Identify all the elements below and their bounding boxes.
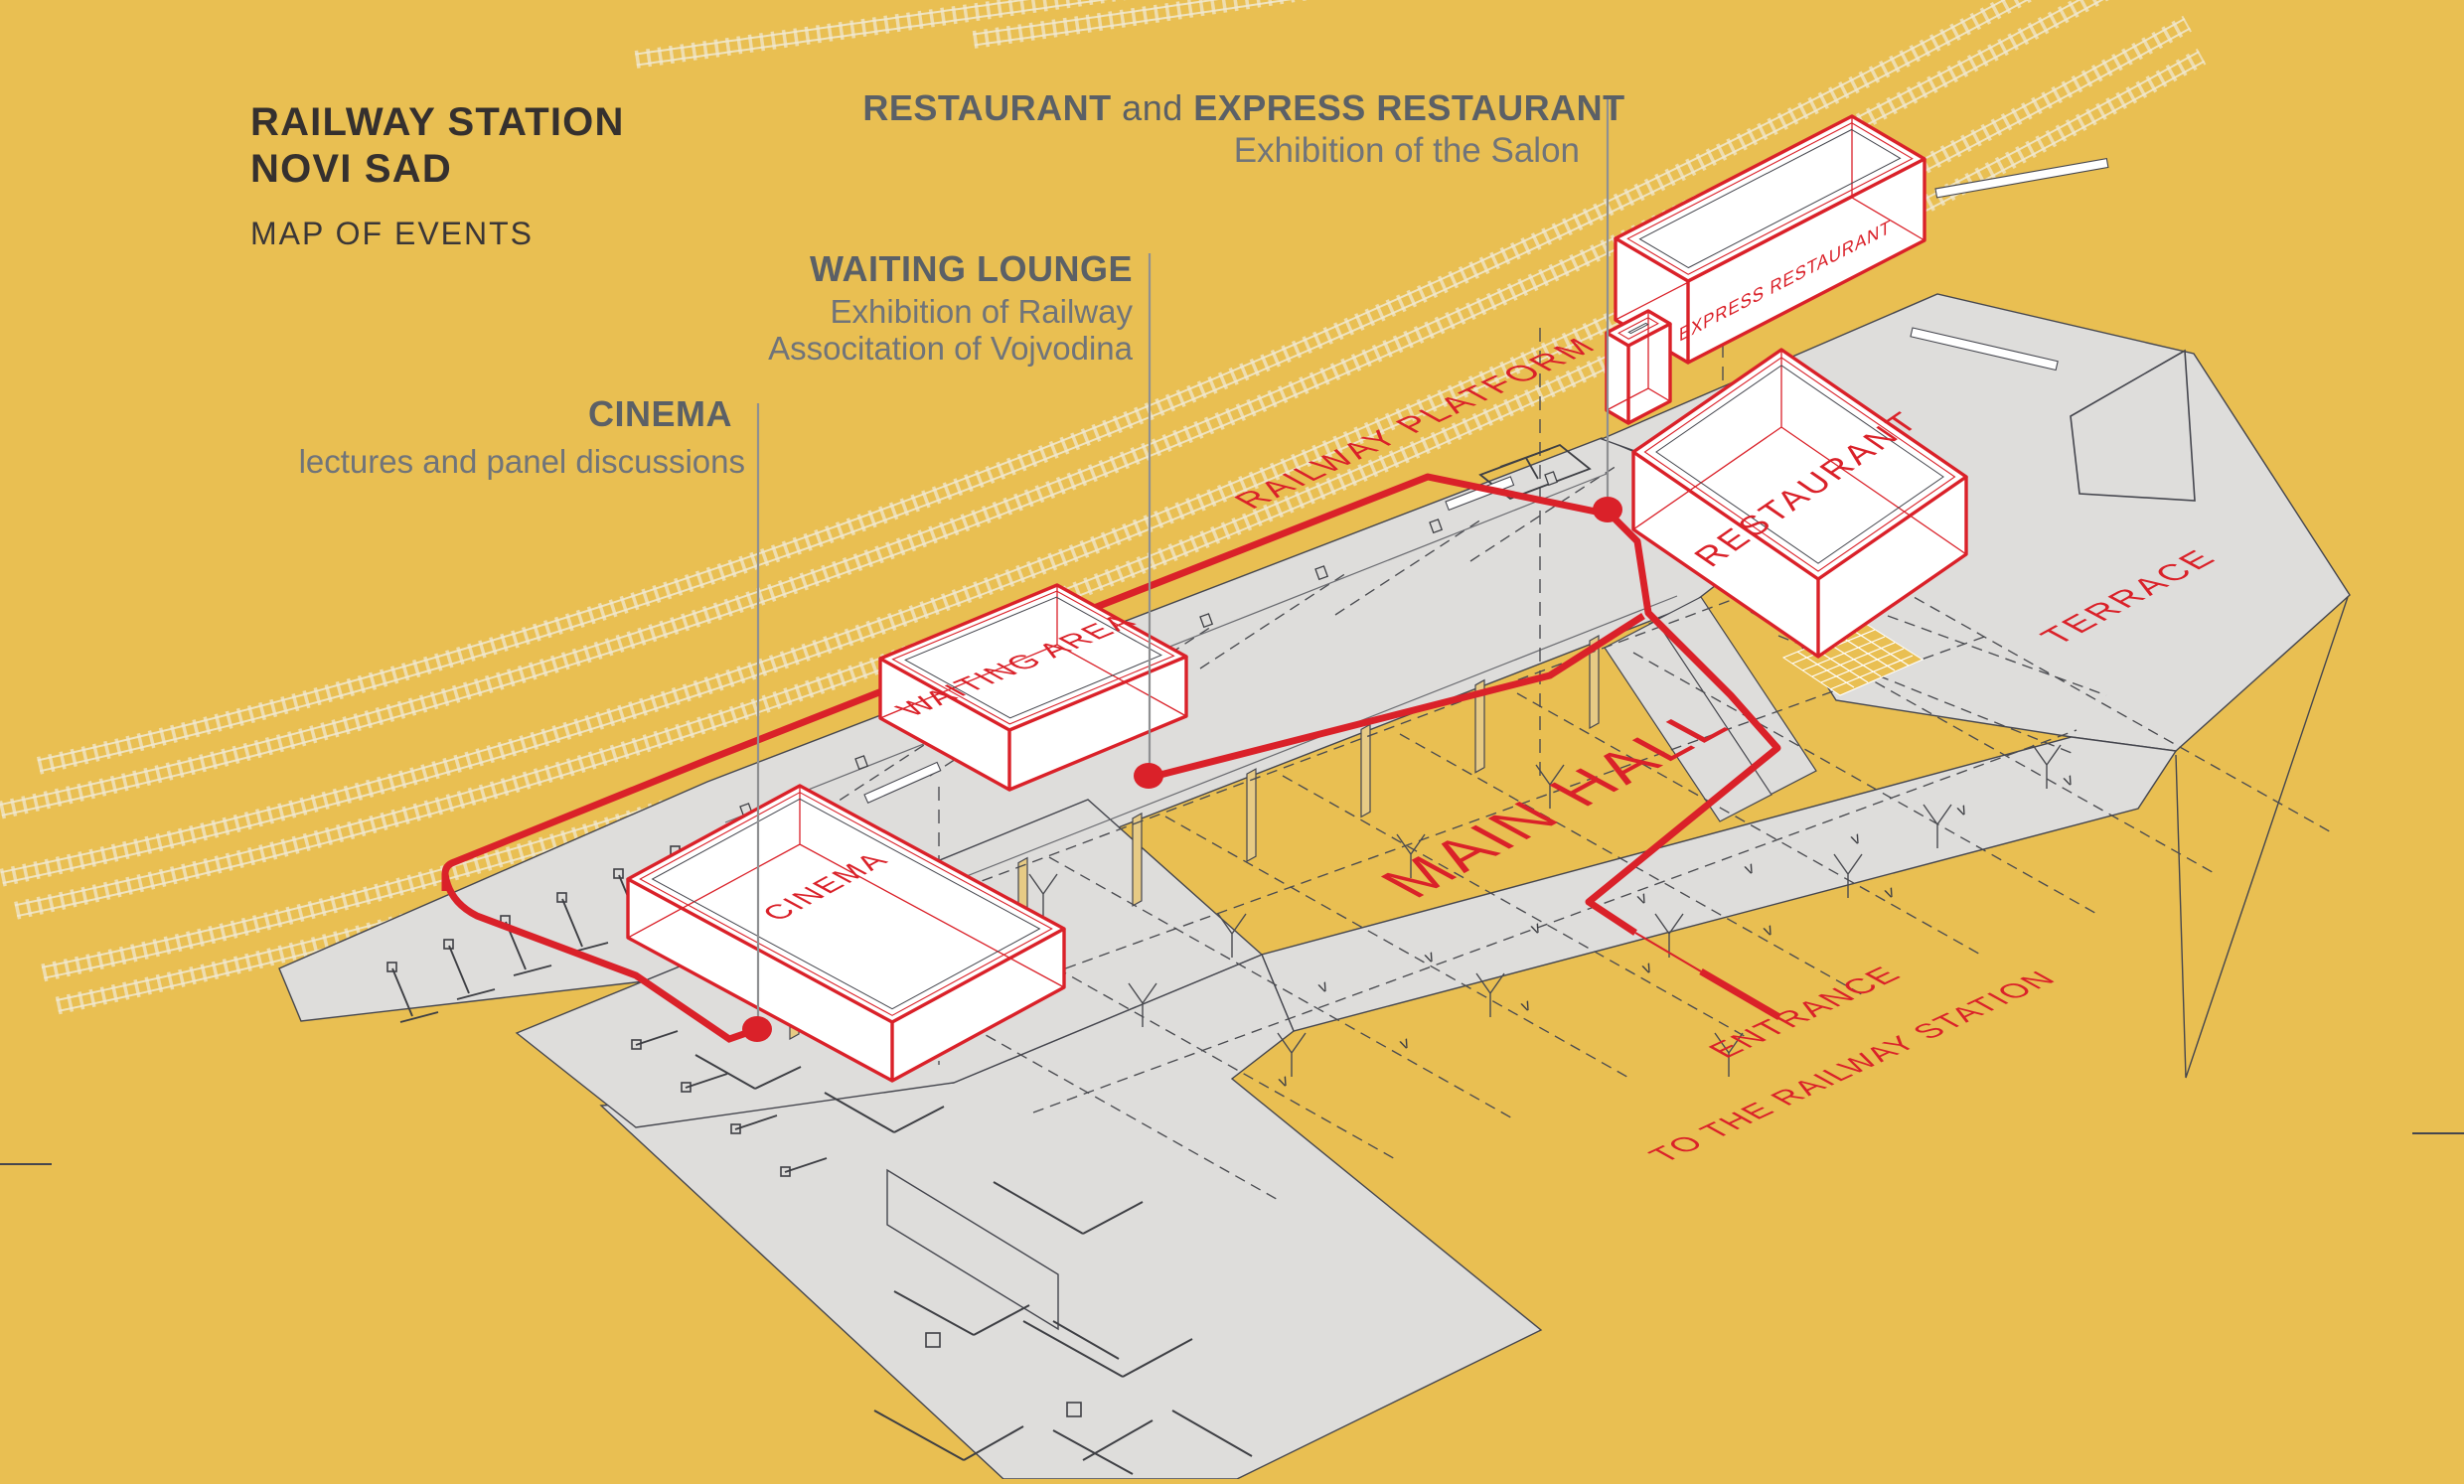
svg-text:Associtation of Vojvodina: Associtation of Vojvodina <box>768 330 1134 367</box>
svg-text:NOVI SAD: NOVI SAD <box>250 147 452 191</box>
svg-text:RAILWAY STATION: RAILWAY STATION <box>250 100 625 144</box>
svg-text:RESTAURANT and EXPRESS RESTAUR: RESTAURANT and EXPRESS RESTAURANT <box>862 87 1624 128</box>
svg-text:lectures and panel discussions: lectures and panel discussions <box>299 443 745 480</box>
svg-text:Exhibition of the Salon: Exhibition of the Salon <box>1234 131 1580 170</box>
svg-text:Exhibition of Railway: Exhibition of Railway <box>831 293 1134 330</box>
svg-text:MAP OF EVENTS: MAP OF EVENTS <box>250 216 534 251</box>
svg-text:CINEMA: CINEMA <box>588 393 732 434</box>
svg-text:WAITING LOUNGE: WAITING LOUNGE <box>810 248 1133 289</box>
